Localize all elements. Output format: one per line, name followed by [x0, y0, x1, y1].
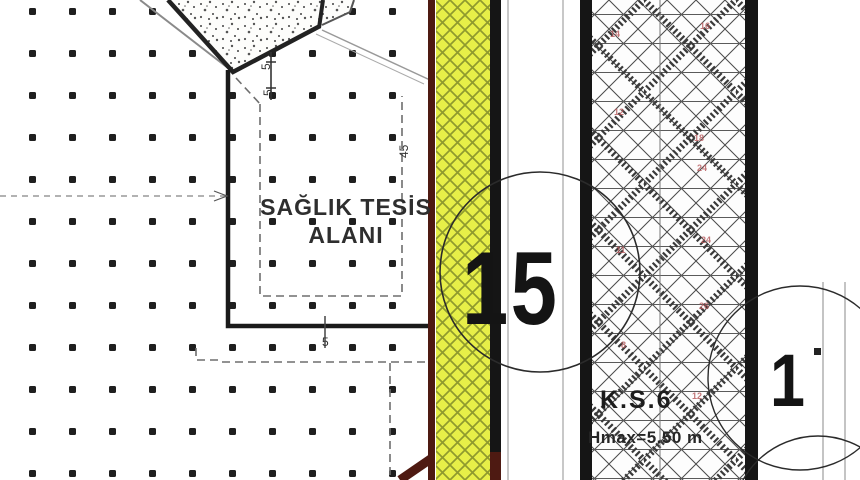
parcel-number: 14 [610, 30, 620, 39]
health-facility-area-label-line1: SAĞLIK TESİS [258, 196, 434, 219]
parcel-number: 26 [699, 302, 709, 311]
parcel-number: 8 [621, 341, 626, 350]
block-right-edge [745, 0, 758, 480]
block-left-edge [580, 0, 592, 480]
dimension-label-5b: 5 [262, 89, 274, 96]
clipped-digit-fragment [814, 348, 821, 355]
parcel-number: 24 [701, 236, 711, 245]
dimension-label-45: 45 [398, 145, 410, 158]
block-number-15: 15 [462, 237, 559, 341]
parcel-number: 24 [697, 164, 707, 173]
block-number-right: 1 [770, 344, 805, 418]
zone-code-label: K.S.6 [600, 388, 673, 413]
parcel-number: 16 [700, 22, 710, 31]
parcel-number: 11 [616, 246, 626, 255]
dimension-label-5c: 5 [322, 336, 329, 348]
health-facility-area-label-line2: ALANI [258, 224, 434, 247]
parcel-number: 12 [692, 392, 702, 401]
dimension-label-5a: 5 [260, 63, 272, 70]
parcel-number: 12 [614, 108, 624, 117]
parcel-number: 18 [694, 134, 704, 143]
zoning-plan-map: SAĞLIK TESİS ALANI 15 1 K.S.6 Hmax=5.50 … [0, 0, 860, 480]
black-edge-line [490, 0, 501, 452]
height-limit-label: Hmax=5.50 m [588, 429, 703, 446]
